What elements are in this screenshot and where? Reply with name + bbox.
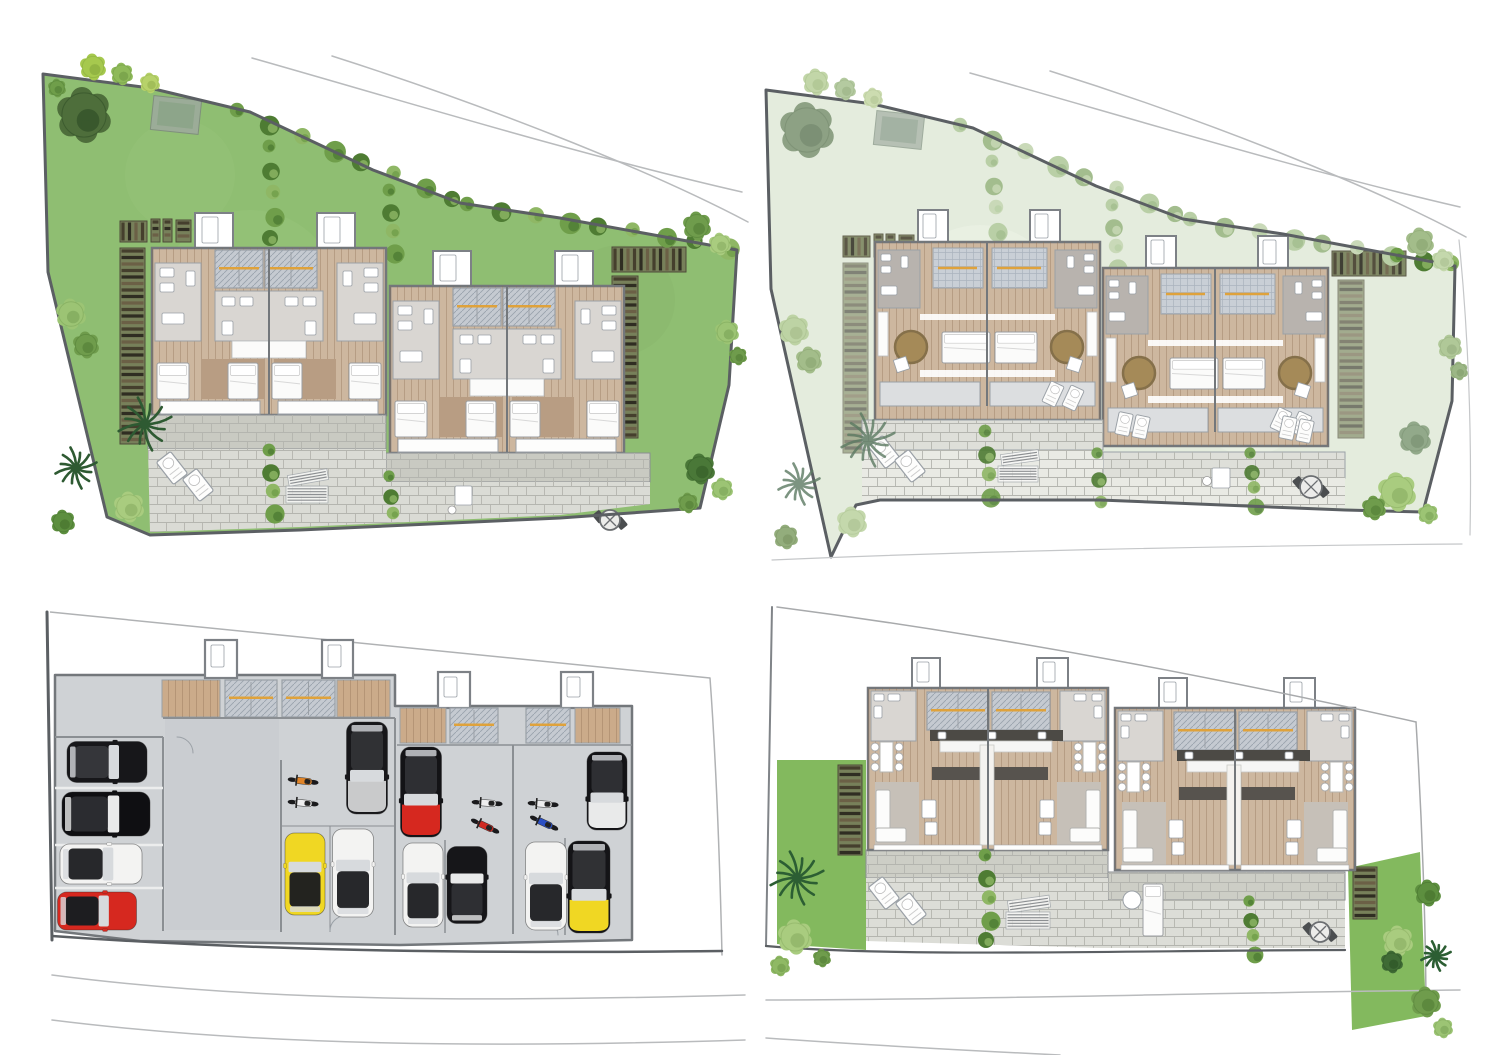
staircase: [1174, 712, 1236, 750]
quadrant-ground-floor-site-plan: [766, 607, 1460, 1055]
terrace-table: [1123, 891, 1141, 909]
car-black-red: [399, 747, 443, 837]
car-rear-window: [408, 918, 438, 924]
bush-shade: [388, 188, 394, 194]
terrace-upper-texture: [148, 415, 386, 449]
fixture: [1094, 706, 1102, 718]
bush-shade: [1097, 478, 1105, 486]
dining-chairs: [895, 743, 903, 771]
coffee-table: [1287, 820, 1301, 838]
site-boundary: [47, 612, 52, 940]
car-rear-window: [592, 755, 622, 760]
bush-shade: [1249, 919, 1257, 927]
planting-bed: [176, 220, 191, 242]
fixture: [1121, 714, 1131, 721]
fixture: [938, 732, 946, 739]
fixture: [1321, 714, 1333, 721]
entry-door: [923, 214, 936, 238]
fixture: [1312, 292, 1322, 299]
fixture: [1295, 282, 1302, 294]
car-mirror: [331, 862, 334, 867]
fixture: [354, 313, 376, 324]
staircase: [265, 250, 317, 288]
chair: [1321, 773, 1329, 781]
tree: [80, 54, 106, 81]
dining-table: [880, 742, 893, 772]
garden-deck: [157, 101, 195, 129]
bush-shade: [985, 877, 994, 886]
road-edge: [766, 1038, 1060, 1055]
car-rear-window: [63, 849, 69, 879]
chair: [1098, 763, 1106, 771]
tree-shade: [1424, 890, 1435, 901]
bench: [1087, 312, 1097, 356]
fixture: [240, 297, 253, 306]
entry-door: [1263, 240, 1276, 264]
car-mirror: [112, 835, 117, 838]
kitchen-cabinets: [1187, 761, 1299, 772]
entry-door: [444, 677, 457, 697]
balcony: [880, 382, 980, 406]
car-roof: [351, 731, 383, 770]
car-roof: [337, 871, 369, 908]
dining-table: [1330, 762, 1343, 792]
tree: [813, 949, 831, 968]
tree-shade: [790, 933, 804, 947]
chair: [871, 753, 879, 761]
staircase: [526, 708, 570, 743]
balcony: [398, 439, 498, 452]
tree-shade: [805, 357, 816, 368]
fixture: [460, 335, 473, 344]
tree-shade: [60, 519, 70, 529]
pillow: [1173, 361, 1216, 370]
fixture: [1074, 694, 1086, 701]
fixture: [541, 335, 554, 344]
fixture: [364, 283, 378, 292]
car-black-silver: [345, 722, 389, 814]
car-black-white: [586, 752, 629, 830]
chair: [1118, 763, 1126, 771]
fixture: [1339, 714, 1349, 721]
chair: [1345, 773, 1353, 781]
bench: [878, 312, 888, 356]
chair: [871, 743, 879, 751]
tree: [774, 525, 798, 550]
chair: [1118, 783, 1126, 791]
fixture: [1121, 726, 1129, 738]
car-mirror: [113, 781, 118, 784]
chair: [1321, 783, 1329, 791]
planting-bed: [838, 765, 862, 855]
road-edge: [52, 975, 745, 999]
entry-door: [1164, 682, 1176, 702]
tree-shade: [717, 242, 726, 251]
bush-shade: [996, 230, 1006, 240]
fixture: [881, 254, 891, 261]
entry-door: [1035, 214, 1048, 238]
car-mirror: [626, 796, 629, 801]
car-windshield: [407, 872, 440, 883]
car-white: [60, 843, 142, 886]
tree-shade: [55, 86, 63, 94]
car-windshield: [572, 889, 607, 901]
balcony: [160, 401, 260, 414]
tree-shade: [800, 124, 823, 147]
dining-chairs: [1098, 743, 1106, 771]
car-hood: [348, 781, 386, 812]
fixture: [1092, 694, 1102, 701]
car-mirror: [103, 891, 108, 894]
staircase: [992, 692, 1050, 730]
chair: [1142, 783, 1150, 791]
fixture: [1129, 282, 1136, 294]
fixture: [901, 256, 908, 268]
road-edge: [772, 544, 1462, 560]
bush-shade: [984, 429, 990, 435]
tree-shade: [1447, 344, 1457, 354]
bush-shade: [1253, 953, 1261, 961]
tree: [1406, 228, 1434, 257]
bush-shade: [269, 471, 278, 480]
bed: [995, 332, 1037, 363]
moto-handlebar: [296, 797, 297, 808]
chair: [1118, 773, 1126, 781]
bed: [1170, 358, 1218, 389]
window-band: [1121, 865, 1229, 870]
bed-frame: [838, 765, 862, 855]
car-roof: [573, 850, 606, 889]
tree-shade: [1389, 960, 1398, 969]
balcony: [516, 439, 616, 452]
entry-door: [1151, 240, 1164, 264]
window-band: [874, 845, 982, 850]
bench: [998, 466, 1038, 482]
driveway: [165, 719, 279, 930]
tree-shade: [1457, 369, 1465, 377]
fixture: [222, 297, 235, 306]
planting-bed: [1353, 867, 1377, 919]
bush-shade: [991, 159, 997, 165]
car-mirror: [107, 843, 112, 846]
fixture: [364, 268, 378, 277]
chair: [1345, 783, 1353, 791]
chair: [871, 763, 879, 771]
palm-crown: [140, 419, 149, 428]
staircase: [453, 288, 501, 326]
bush-shade: [984, 938, 992, 946]
coffee-table: [922, 800, 936, 818]
car-mirror: [442, 874, 445, 879]
bush-shade: [1252, 934, 1258, 940]
tree-shade: [685, 501, 693, 509]
tree-shade: [119, 72, 128, 81]
car-windshield: [109, 745, 119, 779]
fixture: [543, 359, 554, 373]
pillow: [160, 366, 187, 376]
staircase: [450, 708, 498, 743]
fixture: [1135, 714, 1147, 721]
car-rear-window: [61, 897, 67, 925]
terrace-upper-texture: [386, 453, 650, 482]
fixture: [1235, 752, 1243, 759]
tree-shade: [724, 329, 734, 339]
tree: [111, 63, 133, 86]
fixture: [1067, 256, 1074, 268]
terrace-table: [455, 486, 472, 505]
pillow: [1146, 887, 1161, 897]
site-boundary: [710, 678, 722, 955]
car-mirror: [345, 774, 348, 779]
tree-shade: [812, 79, 823, 90]
coffee-table: [1040, 800, 1054, 818]
car-mirror: [486, 875, 489, 880]
palm-crown: [792, 873, 801, 882]
chair: [1345, 763, 1353, 771]
car-mirror: [565, 875, 568, 880]
planting-bed: [163, 219, 172, 242]
chair: [1074, 753, 1082, 761]
fixture: [1341, 726, 1349, 738]
bench: [286, 486, 328, 503]
entry-door: [567, 677, 580, 697]
fixture: [1109, 312, 1125, 321]
bed: [510, 401, 540, 437]
fixture: [305, 321, 316, 335]
car-white: [402, 843, 445, 927]
bush-shade: [268, 448, 274, 454]
terrace-table: [1212, 468, 1230, 488]
bed: [395, 401, 427, 437]
tree-shade: [696, 466, 709, 479]
car-windshield: [99, 896, 109, 927]
car-roof: [408, 883, 439, 918]
car-rear-window: [531, 921, 562, 927]
bed: [272, 363, 302, 399]
bed: [157, 363, 189, 399]
car-mirror: [113, 740, 118, 743]
bush-shade: [392, 229, 399, 236]
tree-shade: [147, 81, 155, 89]
dining-table: [1083, 742, 1096, 772]
entry-door: [324, 217, 340, 243]
fixture: [285, 297, 298, 306]
entry-door: [211, 645, 224, 667]
tree: [683, 212, 711, 241]
entry-deck-texture: [575, 708, 620, 743]
dining-chairs: [1345, 763, 1353, 791]
residential-building-west: [868, 658, 1108, 850]
car-mirror: [399, 798, 402, 803]
car-roof: [75, 746, 109, 778]
car-windshield: [529, 873, 563, 884]
car-roof: [405, 756, 437, 794]
pillow: [998, 335, 1035, 344]
car-roof: [452, 883, 483, 915]
car-mirror: [107, 883, 112, 886]
tree-shade: [82, 342, 93, 353]
tree: [803, 69, 829, 96]
car-roof: [290, 872, 321, 906]
car-mirror: [586, 796, 589, 801]
pillow: [590, 404, 617, 414]
bush-shade: [1115, 244, 1122, 251]
car-rear-window: [290, 906, 320, 912]
fixture: [874, 694, 884, 701]
car-rear-window: [352, 725, 383, 731]
planting-bed: [120, 221, 147, 242]
tree-shade: [1392, 488, 1408, 504]
planting-bed: [843, 236, 870, 257]
moto-handlebar: [480, 797, 481, 808]
bench: [1106, 338, 1116, 382]
planting-bed: [612, 247, 686, 272]
tree-shade: [1440, 258, 1449, 267]
tree-shade: [842, 87, 851, 96]
fixture: [160, 283, 174, 292]
car-hood: [589, 802, 626, 828]
fixture: [592, 351, 614, 362]
fixture: [602, 321, 616, 330]
quadrant-roof-terrace-site-plan: [766, 69, 1471, 560]
fixture: [303, 297, 316, 306]
fixture: [523, 335, 536, 344]
fixture: [1109, 280, 1119, 287]
dining-chairs: [871, 743, 879, 771]
bush-shade: [1112, 226, 1121, 235]
tree: [770, 956, 790, 977]
staircase: [225, 680, 277, 717]
entry-door: [917, 662, 929, 682]
car-mirror: [609, 893, 612, 898]
car-windshield: [350, 770, 384, 782]
balcony: [278, 401, 378, 414]
dining-table: [1127, 762, 1140, 792]
fixture: [398, 321, 412, 330]
tree-shade: [790, 327, 803, 340]
tree-shade: [783, 534, 793, 544]
fixture: [988, 732, 996, 739]
car-black-yellow: [567, 841, 612, 933]
tree-shade: [67, 311, 80, 324]
site-boundary: [766, 607, 772, 946]
tree-shade: [693, 223, 705, 235]
bush-shade: [1249, 452, 1255, 458]
bush-shade: [273, 512, 283, 522]
bush-shade: [272, 489, 279, 496]
bed: [228, 363, 258, 399]
car-mirror: [524, 875, 527, 880]
car-white: [331, 829, 375, 917]
bush-shade: [389, 211, 398, 220]
car-windshield: [451, 873, 484, 883]
fixture: [581, 309, 590, 324]
car-windshield: [404, 794, 438, 806]
bush-shade: [1111, 203, 1117, 209]
fixture: [1285, 752, 1293, 759]
bush-shade: [985, 453, 994, 462]
bush-shade: [393, 252, 403, 262]
sofa: [1070, 828, 1100, 842]
fixture: [478, 335, 491, 344]
coffee-table: [925, 822, 937, 835]
bed: [587, 401, 619, 437]
car-mirror: [567, 893, 570, 898]
car-roof: [68, 849, 102, 880]
dining-chairs: [1074, 743, 1082, 771]
window-band: [994, 845, 1102, 850]
fixture: [1078, 286, 1094, 295]
quadrant-upper-floor-site-plan: [43, 54, 748, 535]
staircase: [1239, 712, 1297, 750]
pillow: [352, 366, 379, 376]
bench: [1315, 338, 1325, 382]
tree-shade: [820, 956, 828, 964]
car-mirror: [386, 774, 389, 779]
coffee-table: [1169, 820, 1183, 838]
residential-building-west: [875, 210, 1100, 420]
dining-chairs: [1118, 763, 1126, 791]
tree-shade: [736, 354, 744, 362]
fixture: [1084, 254, 1094, 261]
fixture: [1038, 732, 1046, 739]
bush-shade: [1250, 471, 1258, 479]
window-band: [1241, 865, 1349, 870]
chair: [895, 753, 903, 761]
bush-shade: [995, 205, 1002, 212]
fixture: [398, 306, 412, 315]
dining-chairs: [1321, 763, 1329, 791]
fixture: [424, 309, 433, 324]
coffee-table: [1286, 842, 1298, 855]
roof-planter: [1051, 331, 1083, 363]
car-mirror: [402, 874, 405, 879]
coffee-table: [1172, 842, 1184, 855]
entry-door: [1290, 682, 1302, 702]
chair: [895, 743, 903, 751]
pillow: [1226, 361, 1263, 370]
fixture: [874, 706, 882, 718]
car-windshield: [336, 860, 370, 871]
car-roof: [65, 897, 98, 926]
planting-bed: [151, 219, 160, 242]
car-windshield: [108, 796, 119, 833]
chair: [1142, 773, 1150, 781]
palm-crown: [863, 435, 872, 444]
sofa: [876, 828, 906, 842]
residential-building-east: [1115, 678, 1355, 870]
car-rear-window: [70, 747, 76, 778]
fixture: [881, 286, 897, 295]
coffee-table: [1039, 822, 1051, 835]
tree-shade: [125, 504, 138, 517]
kitchen-cabinets: [940, 741, 1052, 752]
pillow: [231, 366, 256, 376]
chair: [1321, 763, 1329, 771]
pillow: [398, 404, 425, 414]
garden-deck: [880, 116, 918, 144]
fixture: [343, 271, 352, 286]
road-edge: [52, 1020, 745, 1044]
pillow: [513, 404, 538, 414]
fixture: [222, 321, 233, 335]
fixture: [400, 351, 422, 362]
pillow: [945, 335, 988, 344]
pillow: [275, 366, 300, 376]
tree-shade: [1411, 434, 1424, 447]
car-black: [446, 847, 489, 924]
fixture: [881, 266, 891, 273]
